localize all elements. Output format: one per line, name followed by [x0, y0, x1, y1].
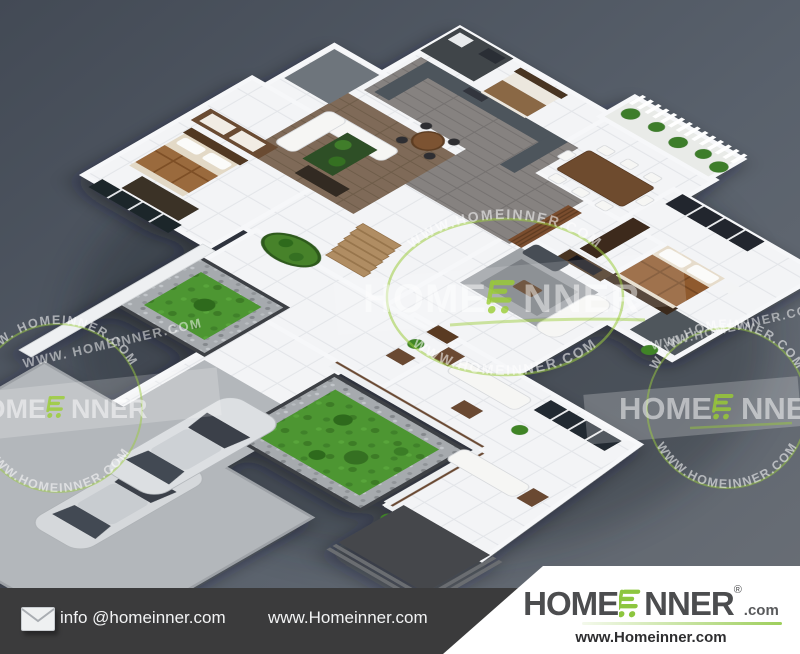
logo-website: www.Homeinner.com: [512, 629, 790, 646]
watermark-main-right: NNER: [71, 394, 148, 424]
logo-swoosh: [582, 622, 782, 625]
watermark-main-left: HOME: [619, 391, 712, 426]
logo-text-right: NNER: [644, 587, 734, 620]
envelope-icon: [21, 607, 55, 636]
footer-email: info @homeinner.com: [60, 608, 226, 628]
registered-mark: ®: [734, 585, 742, 596]
logo-tld: .com: [744, 603, 779, 618]
logo-text-left: HOME: [523, 587, 618, 620]
watermark-main-right: NNER: [523, 277, 640, 321]
homeinner-logo: HOME NNER ® .com www.Homeinner.com: [512, 587, 790, 646]
watermark-main-left: HOME: [0, 394, 46, 424]
shopping-cart-icon: [619, 589, 643, 619]
watermark-main-right: NNER: [741, 391, 800, 426]
footer-website: www.Homeinner.com: [268, 608, 428, 628]
watermark-main-left: HOME: [363, 277, 487, 321]
floor-plan-render: WWW.HOMEINNER.COM WWW.HOMEINNER.COM HOME…: [0, 0, 800, 654]
